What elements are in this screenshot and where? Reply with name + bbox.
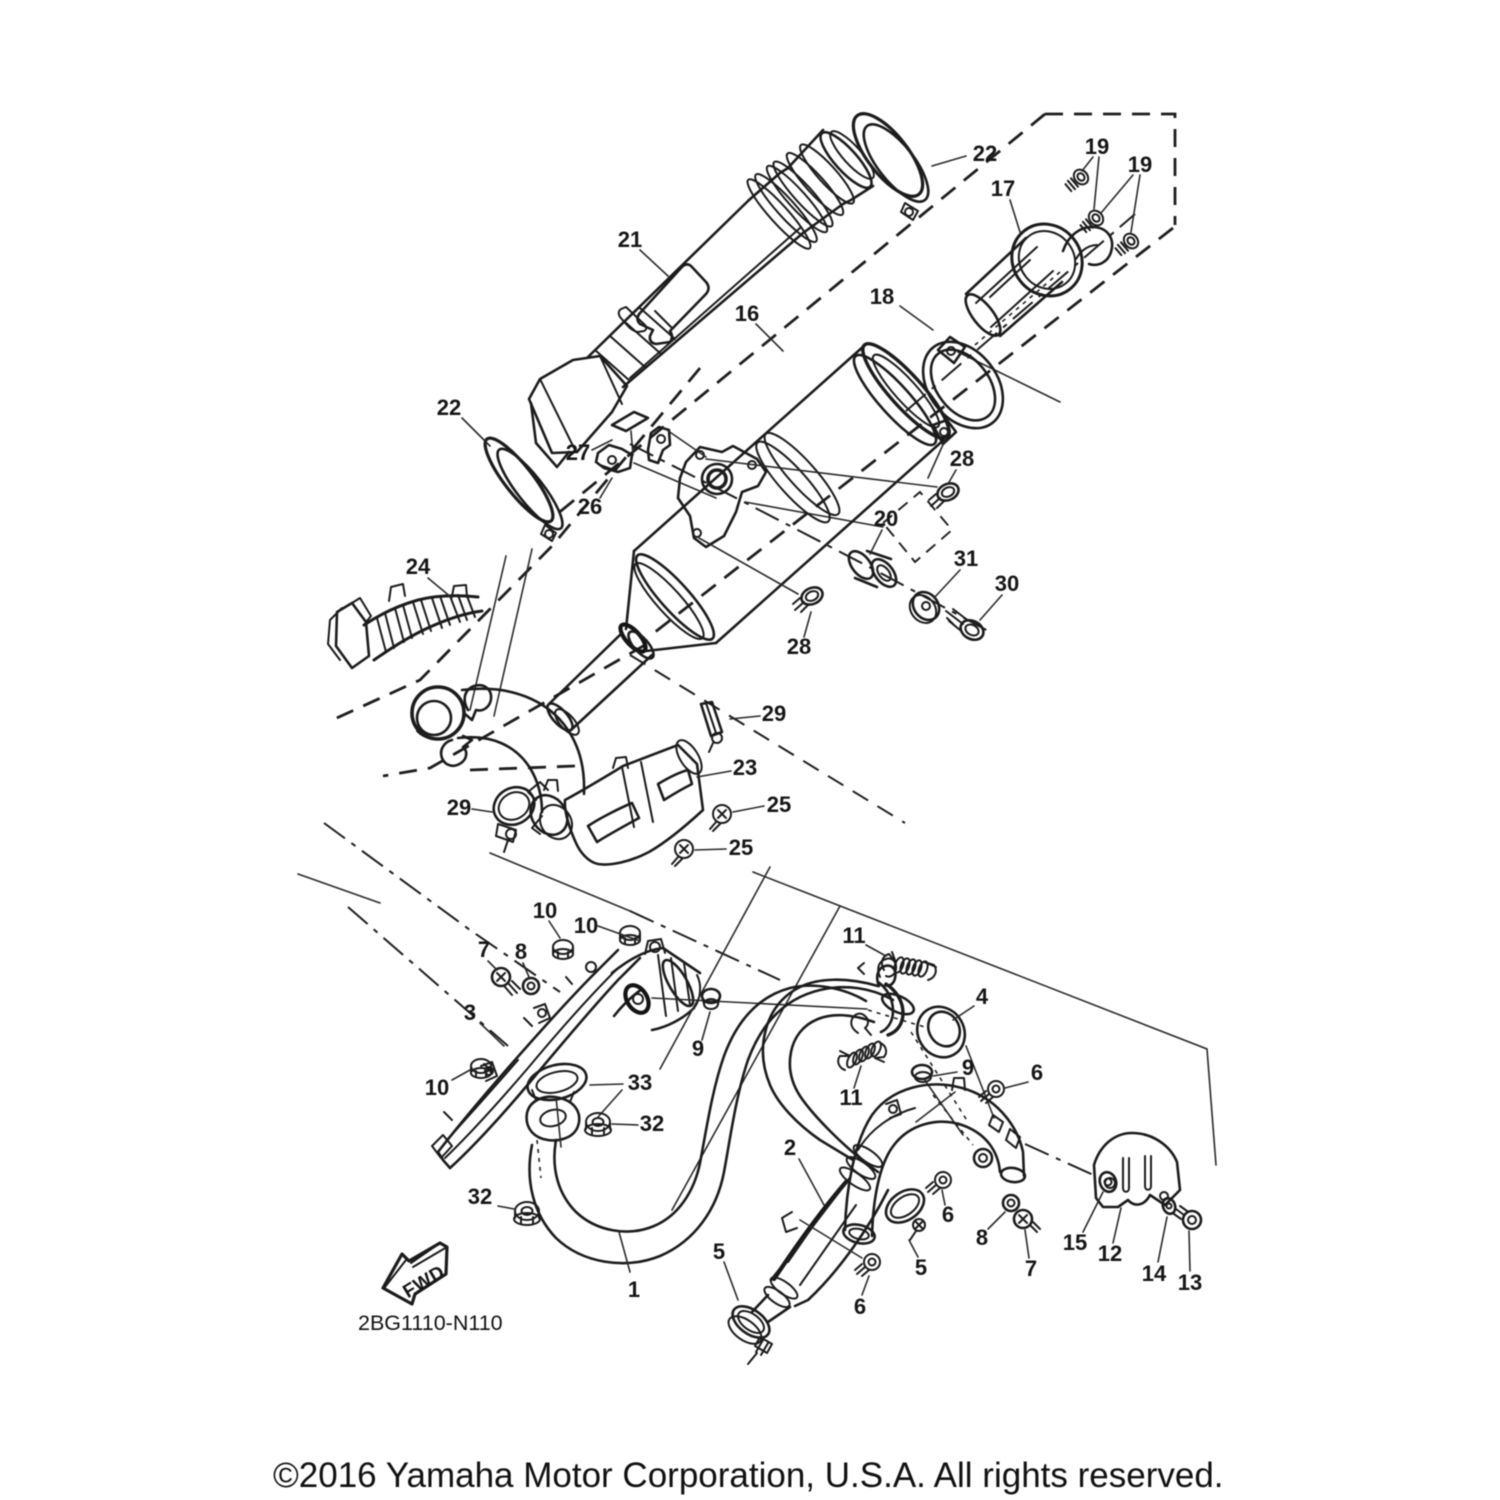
svg-text:29: 29 (447, 795, 471, 820)
svg-text:29: 29 (762, 701, 786, 726)
svg-text:23: 23 (733, 755, 757, 780)
svg-text:5: 5 (915, 1255, 927, 1280)
svg-text:26: 26 (578, 494, 602, 519)
svg-text:6: 6 (942, 1202, 954, 1227)
svg-text:28: 28 (950, 446, 974, 471)
svg-text:10: 10 (425, 1075, 449, 1100)
svg-text:24: 24 (406, 554, 431, 579)
svg-text:3: 3 (464, 1000, 476, 1025)
svg-text:11: 11 (839, 1085, 862, 1110)
svg-text:©2016 Yamaha Motor Corporation: ©2016 Yamaha Motor Corporation, U.S.A. A… (273, 1456, 1224, 1495)
svg-text:19: 19 (1128, 152, 1152, 177)
svg-text:19: 19 (1085, 134, 1109, 159)
svg-text:28: 28 (787, 634, 811, 659)
svg-text:33: 33 (628, 1070, 652, 1095)
svg-text:14: 14 (1142, 1261, 1167, 1286)
svg-text:21: 21 (618, 227, 642, 252)
svg-text:12: 12 (1098, 1241, 1122, 1266)
svg-text:1: 1 (628, 1277, 640, 1302)
svg-text:25: 25 (767, 792, 791, 817)
svg-text:16: 16 (735, 301, 759, 326)
svg-text:10: 10 (533, 898, 557, 923)
svg-text:17: 17 (991, 176, 1015, 201)
svg-text:30: 30 (995, 571, 1019, 596)
svg-text:5: 5 (713, 1239, 725, 1264)
svg-text:18: 18 (870, 284, 894, 309)
svg-text:25: 25 (729, 835, 753, 860)
svg-text:4: 4 (976, 984, 989, 1009)
svg-text:31: 31 (954, 546, 978, 571)
svg-text:8: 8 (515, 939, 527, 964)
svg-text:2BG1110-N110: 2BG1110-N110 (358, 1311, 503, 1335)
svg-text:32: 32 (468, 1184, 492, 1209)
svg-text:10: 10 (574, 913, 598, 938)
svg-text:27: 27 (566, 440, 590, 465)
svg-text:15: 15 (1063, 1230, 1087, 1255)
svg-text:7: 7 (1025, 1256, 1037, 1281)
svg-text:2: 2 (784, 1135, 796, 1160)
svg-text:6: 6 (1031, 1060, 1043, 1085)
svg-text:13: 13 (1178, 1270, 1202, 1295)
svg-text:20: 20 (874, 506, 898, 531)
svg-text:6: 6 (854, 1294, 866, 1319)
svg-text:22: 22 (437, 395, 461, 420)
svg-text:32: 32 (640, 1111, 664, 1136)
svg-text:11: 11 (842, 923, 865, 948)
svg-text:22: 22 (973, 141, 997, 166)
svg-text:7: 7 (478, 937, 490, 962)
svg-text:8: 8 (976, 1225, 988, 1250)
svg-text:9: 9 (962, 1055, 974, 1080)
